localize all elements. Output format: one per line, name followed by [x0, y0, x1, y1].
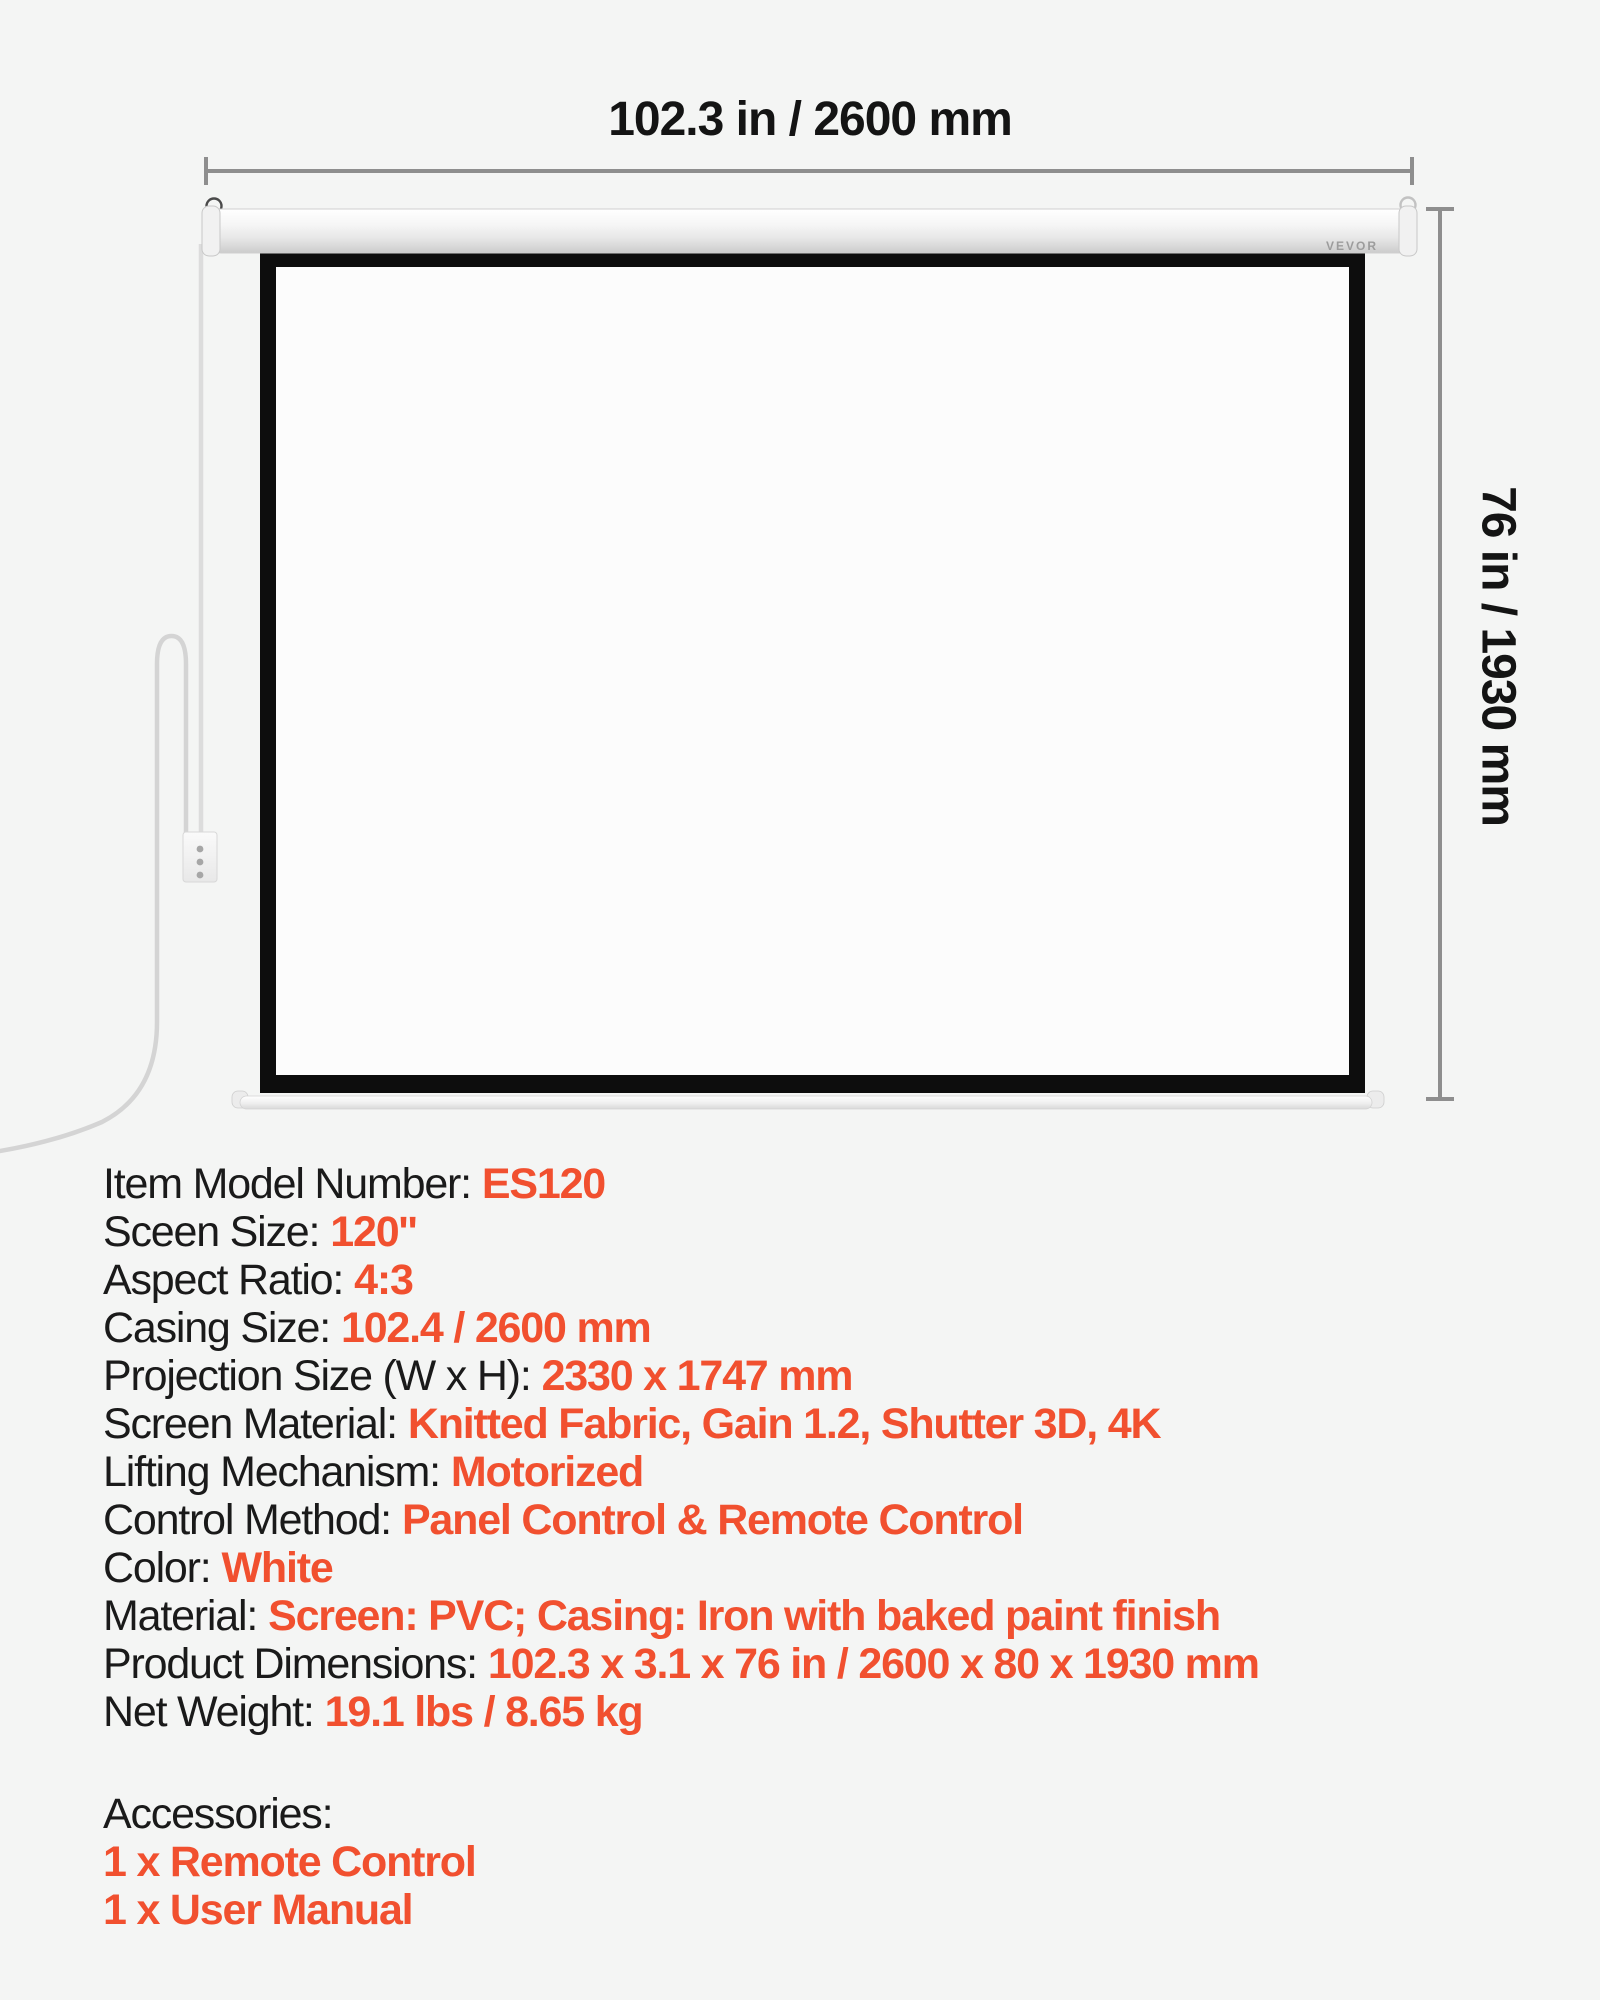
spec-label: Projection Size (W x H): — [103, 1352, 531, 1400]
projector-screen-illustration — [0, 0, 1600, 1160]
accessories-header-row: Accessories: — [103, 1790, 1259, 1838]
height-dimension-line — [1438, 207, 1442, 1101]
spec-value: 102.4 / 2600 mm — [341, 1304, 651, 1352]
spec-row: Color:White — [103, 1544, 1259, 1592]
spec-row: Material:Screen: PVC; Casing: Iron with … — [103, 1592, 1259, 1640]
spec-list: Item Model Number:ES120 Sceen Size:120''… — [103, 1160, 1259, 1934]
spec-value: Screen: PVC; Casing: Iron with baked pai… — [268, 1592, 1220, 1640]
spec-label: Aspect Ratio: — [103, 1256, 343, 1304]
screen-white-surface — [276, 267, 1349, 1075]
control-box-button — [197, 872, 204, 879]
dimension-tick — [1426, 1097, 1454, 1101]
spec-row: Net Weight:19.1 lbs / 8.65 kg — [103, 1688, 1259, 1736]
spec-label: Control Method: — [103, 1496, 391, 1544]
brand-logo: VEVOR — [1326, 239, 1378, 253]
spec-label: Product Dimensions: — [103, 1640, 477, 1688]
spec-row: Control Method:Panel Control & Remote Co… — [103, 1496, 1259, 1544]
spec-row: Projection Size (W x H):2330 x 1747 mm — [103, 1352, 1259, 1400]
spec-value: Knitted Fabric, Gain 1.2, Shutter 3D, 4K — [408, 1400, 1160, 1448]
power-cord-loop — [0, 636, 186, 1152]
spec-value: 120'' — [330, 1208, 416, 1256]
casing-bar — [205, 209, 1417, 253]
spec-label: Lifting Mechanism: — [103, 1448, 440, 1496]
accessories-section: Accessories: 1 x Remote Control 1 x User… — [103, 1790, 1259, 1934]
spec-label: Material: — [103, 1592, 257, 1640]
spec-row: Screen Material:Knitted Fabric, Gain 1.2… — [103, 1400, 1259, 1448]
spec-row: Aspect Ratio:4:3 — [103, 1256, 1259, 1304]
accessory-item: 1 x User Manual — [103, 1886, 1259, 1934]
control-box-button — [197, 846, 204, 853]
spec-value: 2330 x 1747 mm — [542, 1352, 853, 1400]
spec-value: Motorized — [451, 1448, 643, 1496]
control-box-button — [197, 859, 204, 866]
casing-endcap-right — [1399, 206, 1417, 256]
spec-label: Sceen Size: — [103, 1208, 319, 1256]
spec-label: Item Model Number: — [103, 1160, 471, 1208]
height-dimension-label: 76 in / 1930 mm — [1471, 486, 1526, 826]
spec-row: Casing Size:102.4 / 2600 mm — [103, 1304, 1259, 1352]
spec-row: Item Model Number:ES120 — [103, 1160, 1259, 1208]
spec-label: Net Weight: — [103, 1688, 314, 1736]
weight-bar — [240, 1096, 1372, 1109]
spec-value: 19.1 lbs / 8.65 kg — [325, 1688, 643, 1736]
spec-row: Sceen Size:120'' — [103, 1208, 1259, 1256]
dimension-tick — [1426, 207, 1454, 211]
spec-value: 4:3 — [354, 1256, 413, 1304]
spec-label: Screen Material: — [103, 1400, 397, 1448]
accessories-header: Accessories: — [103, 1790, 332, 1838]
spec-row: Product Dimensions:102.3 x 3.1 x 76 in /… — [103, 1640, 1259, 1688]
spec-value: White — [222, 1544, 333, 1592]
spec-label: Casing Size: — [103, 1304, 330, 1352]
spec-value: 102.3 x 3.1 x 76 in / 2600 x 80 x 1930 m… — [488, 1640, 1259, 1688]
accessory-item: 1 x Remote Control — [103, 1838, 1259, 1886]
spec-value: ES120 — [482, 1160, 605, 1208]
casing-endcap-left — [202, 206, 220, 256]
spec-row: Lifting Mechanism:Motorized — [103, 1448, 1259, 1496]
spec-label: Color: — [103, 1544, 211, 1592]
product-spec-sheet: 102.3 in / 2600 mm — [0, 0, 1600, 2000]
spec-value: Panel Control & Remote Control — [402, 1496, 1023, 1544]
